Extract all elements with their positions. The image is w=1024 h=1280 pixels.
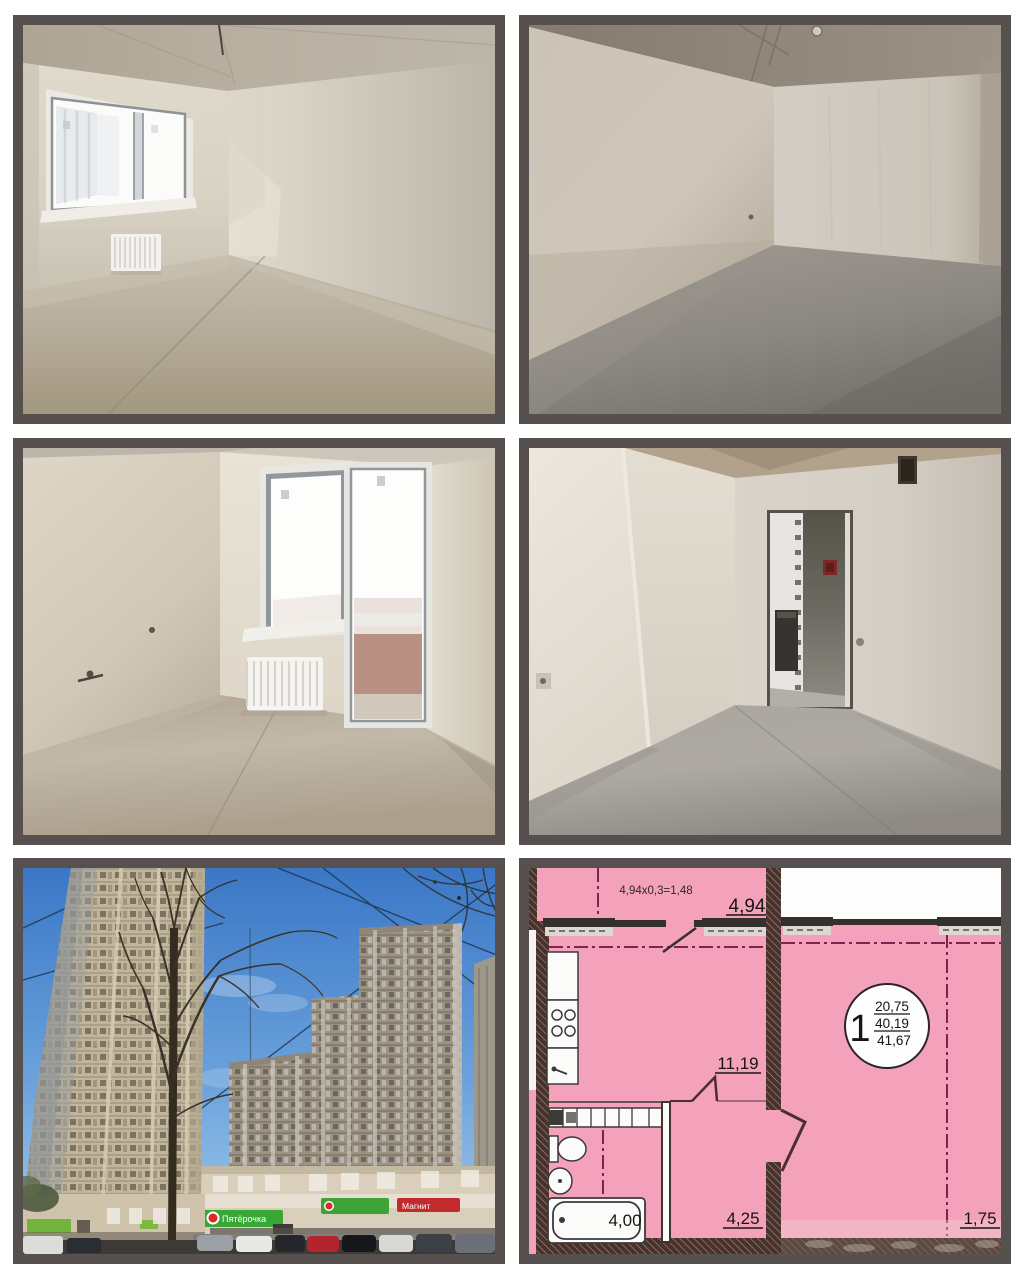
svg-text:Магнит: Магнит [402,1201,430,1211]
svg-text:40,19: 40,19 [875,1016,909,1031]
svg-text:4,00: 4,00 [608,1211,641,1230]
svg-text:11,19: 11,19 [717,1054,758,1073]
svg-text:4,25: 4,25 [726,1209,759,1228]
svg-text:1: 1 [849,1008,870,1050]
svg-text:20,75: 20,75 [875,999,909,1014]
svg-text:Пятёрочка: Пятёрочка [222,1214,266,1224]
svg-text:1,75: 1,75 [963,1209,996,1228]
svg-text:4,94: 4,94 [729,896,766,917]
svg-text:4,94x0,3=1,48: 4,94x0,3=1,48 [619,885,692,897]
svg-text:41,67: 41,67 [877,1033,911,1048]
